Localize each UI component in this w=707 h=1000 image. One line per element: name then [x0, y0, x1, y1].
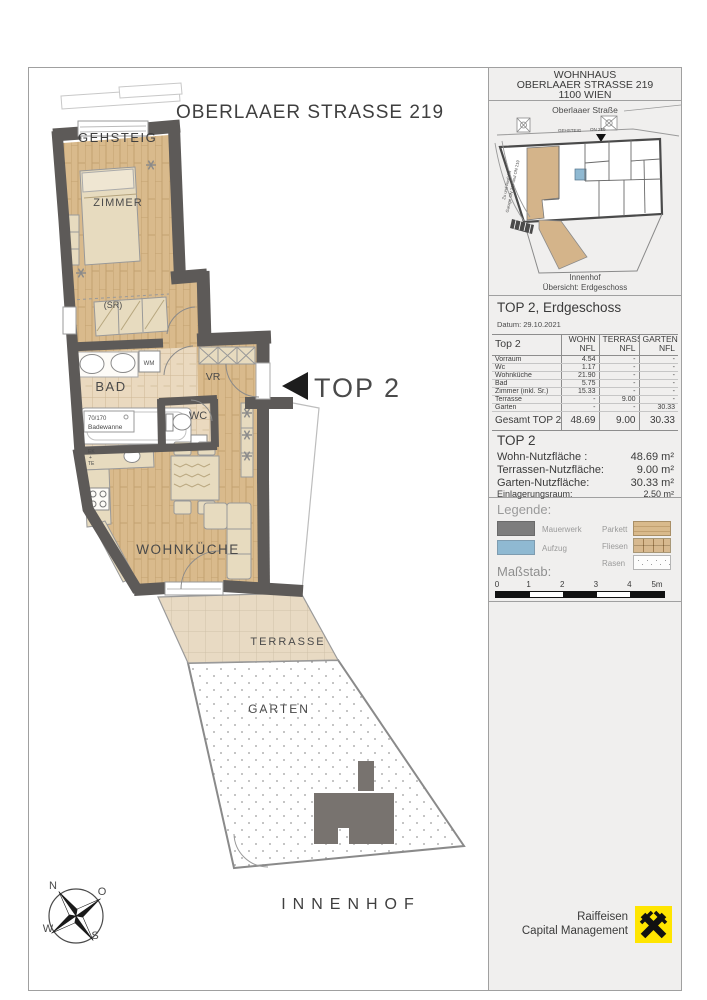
info-panel: WOHNHAUS OBERLAAER STRASSE 219 1100 WIEN… — [488, 68, 681, 990]
legend-label-parkett: Parkett — [602, 525, 627, 534]
summary-section: TOP 2 Wohn-Nutzfläche :48.69 m² Terrasse… — [489, 431, 681, 498]
legend-label-mauerwerk: Mauerwerk — [542, 525, 582, 534]
map-gehsteig-label: GEHSTEIG — [558, 128, 582, 133]
table-row: Bad5.75-- — [492, 380, 678, 388]
legend-title: Legende: — [497, 502, 551, 517]
wohnkueche-label: WOHNKÜCHE — [136, 542, 240, 557]
terrasse-area — [158, 593, 338, 663]
summary-row: Garten-Nutzfläche:30.33 m² — [497, 477, 674, 489]
header-line3: 1100 WIEN — [489, 90, 681, 100]
table-row: Garten--30.33 — [492, 404, 678, 412]
col-header-terrasse: TERRASSENFL — [599, 335, 639, 356]
sink-right — [111, 354, 135, 373]
legend-swatch-mauerwerk — [497, 521, 535, 536]
raiffeisen-gable-cross-icon — [635, 906, 672, 943]
building-outline — [500, 139, 662, 222]
scale-title: Maßstab: — [497, 564, 551, 579]
bathtub-size: 70/170 — [88, 416, 107, 422]
unit-marker: TOP 2 — [282, 372, 401, 403]
col-header-garten: GARTENNFL — [639, 335, 678, 356]
overview-map: Oberlaaer Straße GEHSTEIG ON 219 — [489, 101, 681, 296]
zimmer-label: ZIMMER — [93, 197, 142, 209]
gehsteig-label: GEHSTEIG — [78, 130, 157, 145]
garden-structure — [314, 793, 394, 844]
terrasse-label: TERRASSE — [250, 636, 325, 648]
garten-area — [188, 660, 464, 868]
table-row: Terrasse-9.00- — [492, 396, 678, 404]
entrance-opening — [256, 363, 270, 399]
sr-window — [63, 307, 76, 334]
kitchen-te: TE — [88, 461, 95, 467]
street-title: OBERLAAER STRASSE 219 — [176, 102, 444, 124]
table-row: Wc1.17-- — [492, 364, 678, 372]
garden-shed-small — [358, 761, 374, 791]
area-table-section: Top 2 WOHNNFL TERRASSENFL GARTENNFL Vorr… — [489, 334, 681, 431]
map-elevator — [575, 169, 586, 180]
vr-label: VR — [206, 371, 221, 383]
overview-map-drawing: Oberlaaer Straße GEHSTEIG ON 219 — [489, 101, 681, 296]
compass-s: S — [91, 930, 98, 942]
armchair — [204, 503, 227, 529]
vr-wardrobe — [199, 347, 255, 364]
sofa — [227, 503, 251, 579]
map-caption: Übersicht: Erdgeschoss — [543, 283, 627, 292]
map-on219-label: ON 219 — [590, 127, 606, 132]
scale-bar — [495, 591, 665, 598]
bathtub-name: Badewanne — [88, 424, 123, 431]
innenhof-label: INNENHOF — [281, 896, 421, 914]
map-garden-highlight — [539, 220, 587, 269]
entrance-arrow-icon — [282, 372, 308, 400]
table-total-row: Gesamt TOP 248.699.0030.33 — [492, 412, 678, 431]
street-label: Oberlaaer Straße — [552, 105, 618, 115]
table-row: Vorraum4.54-- — [492, 356, 678, 364]
summary-title: TOP 2 — [497, 433, 536, 448]
boundary-line — [293, 403, 319, 590]
col-header-name: Top 2 — [492, 335, 561, 356]
floorplan-panel: ZIMMER (SR) BAD WM WC VR WOHNKÜCHE TERRA… — [29, 68, 488, 990]
legend-label-rasen: Rasen — [602, 559, 625, 568]
floorplan-drawing: ZIMMER (SR) BAD WM WC VR WOHNKÜCHE TERRA… — [29, 68, 488, 990]
legend-swatch-rasen — [633, 555, 671, 570]
area-table: Top 2 WOHNNFL TERRASSENFL GARTENNFL Vorr… — [492, 334, 678, 431]
wm-label: WM — [144, 361, 155, 367]
legend-swatch-parkett — [633, 521, 671, 536]
unit-label: TOP 2 — [314, 373, 401, 403]
summary-row: Terrassen-Nutzfläche:9.00 m² — [497, 464, 674, 476]
table-header-row: Top 2 WOHNNFL TERRASSENFL GARTENNFL — [492, 335, 678, 356]
sr-label: (SR) — [104, 300, 123, 310]
wc-label: WC — [189, 410, 207, 422]
legend-label-fliesen: Fliesen — [602, 542, 628, 551]
bed-pillow — [82, 169, 134, 192]
building-header: WOHNHAUS OBERLAAER STRASSE 219 1100 WIEN — [489, 68, 681, 101]
garten-label: GARTEN — [248, 702, 310, 716]
bad-label: BAD — [95, 379, 126, 394]
chair — [174, 501, 191, 514]
sheet-frame: ZIMMER (SR) BAD WM WC VR WOHNKÜCHE TERRA… — [28, 67, 682, 991]
summary-row: Wohn-Nutzfläche :48.69 m² — [497, 451, 674, 463]
legend-swatch-fliesen — [633, 538, 671, 553]
section-title: TOP 2, Erdgeschoss — [497, 300, 621, 315]
logo-text: Raiffeisen Capital Management — [522, 910, 628, 938]
compass-w: W — [43, 923, 54, 935]
table-row: Zimmer (inkl. Sr.)15.33-- — [492, 388, 678, 396]
map-innenhof-label: Innenhof — [569, 273, 601, 282]
legend-section: Legende: Mauerwerk Aufzug Parkett Fliese… — [489, 498, 681, 602]
section-date: Datum: 29.10.2021 — [497, 320, 561, 329]
sink-left — [80, 355, 104, 374]
compass-n: N — [49, 880, 57, 892]
dining-table — [171, 456, 219, 500]
toilet-tank — [166, 414, 173, 431]
col-header-wohn: WOHNNFL — [561, 335, 599, 356]
scale-ticks: 0 1 2 3 4 5m — [495, 580, 663, 589]
compass-rose-icon: N O S W — [34, 874, 118, 958]
legend-swatch-aufzug — [497, 540, 535, 555]
compass-o: O — [98, 886, 107, 898]
legend-label-aufzug: Aufzug — [542, 544, 567, 553]
unit-section-header: TOP 2, Erdgeschoss Datum: 29.10.2021 — [489, 296, 681, 334]
table-row: Wohnküche21.90-- — [492, 372, 678, 380]
